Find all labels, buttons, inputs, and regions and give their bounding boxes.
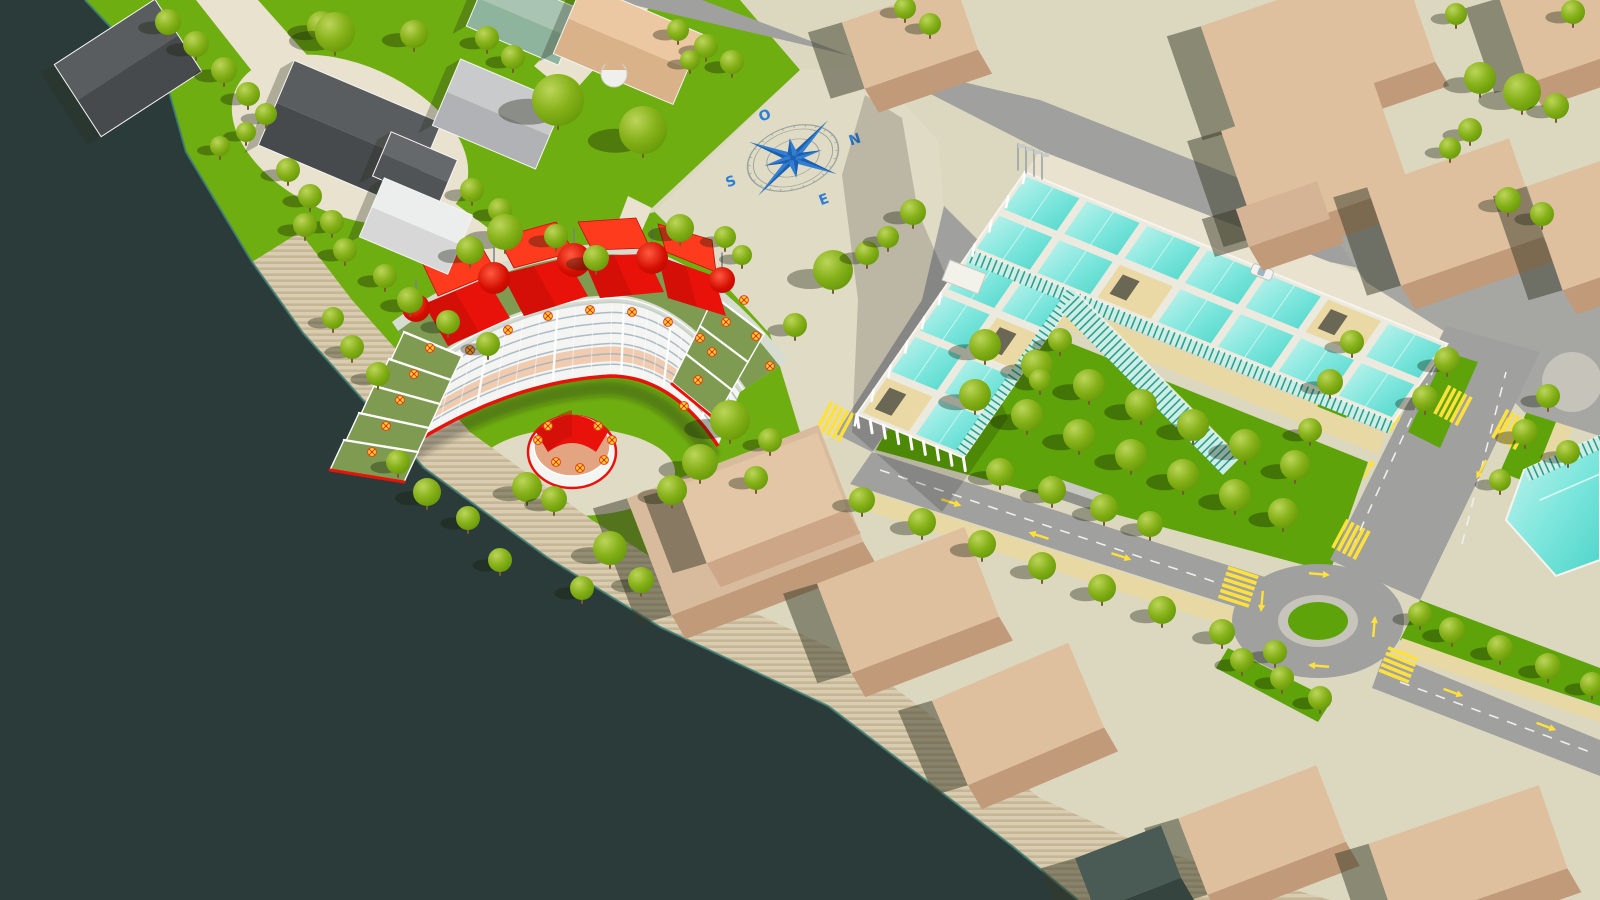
tree [1280, 450, 1310, 480]
tree [666, 214, 694, 242]
tree [1028, 552, 1056, 580]
tree [460, 178, 484, 202]
parasol-icon [600, 456, 609, 465]
tree [541, 486, 567, 512]
tree [1270, 666, 1294, 690]
parasol-icon [664, 318, 673, 327]
tree [512, 472, 542, 502]
tree [628, 567, 654, 593]
tree [1556, 440, 1580, 464]
tree [155, 9, 181, 35]
tree [456, 506, 480, 530]
tree [373, 264, 397, 288]
tree [386, 450, 410, 474]
tree [969, 329, 1001, 361]
tree [1137, 511, 1163, 537]
tree [619, 106, 667, 154]
parasol-icon [628, 308, 637, 317]
parasol-icon [396, 396, 405, 405]
tree [1177, 409, 1209, 441]
tree [315, 12, 355, 52]
parasol-icon [766, 362, 775, 371]
tree [1029, 369, 1051, 391]
parasol-icon [696, 334, 705, 343]
tree [1495, 187, 1521, 213]
tree [908, 508, 936, 536]
tree [276, 158, 300, 182]
tree [657, 475, 687, 505]
tree [400, 20, 428, 48]
tree [1561, 0, 1585, 24]
tree [1038, 476, 1066, 504]
tree [1115, 439, 1147, 471]
tree [1535, 653, 1561, 679]
parasol-icon [382, 422, 391, 431]
tree [1530, 202, 1554, 226]
tree [340, 335, 364, 359]
tree [783, 313, 807, 337]
parasol-icon [544, 312, 553, 321]
tree [1458, 118, 1482, 142]
parasol-icon [426, 344, 435, 353]
tree [959, 379, 991, 411]
parasol-icon [586, 306, 595, 315]
tree [413, 478, 441, 506]
tree [475, 26, 499, 50]
tree [1464, 62, 1496, 94]
parasol-icon [680, 402, 689, 411]
tree [583, 245, 609, 271]
tree [476, 332, 500, 356]
parasol-icon [708, 348, 717, 357]
tree [210, 136, 230, 156]
tree [570, 576, 594, 600]
tree [236, 122, 256, 142]
tree [1308, 686, 1332, 710]
tree [1317, 369, 1343, 395]
tree [293, 213, 317, 237]
tree [1209, 619, 1235, 645]
tree [1512, 419, 1538, 445]
site-plan-rendering: O N S E [0, 0, 1600, 900]
tree [1048, 328, 1072, 352]
tree [1011, 399, 1043, 431]
parasol-icon [594, 422, 603, 431]
tree [1219, 479, 1251, 511]
tree [720, 50, 744, 74]
tree [1439, 137, 1461, 159]
parasol-icon [504, 326, 513, 335]
parasol-icon [368, 448, 377, 457]
tree [456, 236, 484, 264]
tree [236, 82, 260, 106]
tree [680, 50, 700, 70]
tree [1090, 494, 1118, 522]
tree [397, 287, 423, 313]
tree [501, 45, 525, 69]
tree [488, 548, 512, 572]
tree [1536, 384, 1560, 408]
tree [333, 238, 357, 262]
tree [1229, 429, 1261, 461]
parasol-icon [740, 296, 749, 305]
parasol-icon [534, 436, 543, 445]
tree [900, 199, 926, 225]
parasol-icon [552, 458, 561, 467]
parasol-icon [752, 332, 761, 341]
tree [436, 310, 460, 334]
tree [255, 103, 277, 125]
tree [183, 31, 209, 57]
tree [1148, 596, 1176, 624]
tree [1063, 419, 1095, 451]
parasol-icon [544, 422, 553, 431]
tree [667, 19, 689, 41]
tree [1434, 347, 1460, 373]
tree [1487, 635, 1513, 661]
parasol-icon [694, 376, 703, 385]
tree [732, 245, 752, 265]
tree [1439, 617, 1465, 643]
tree [366, 362, 390, 386]
tree [1412, 385, 1438, 411]
tree [1073, 369, 1105, 401]
tree [1340, 330, 1364, 354]
tree [1408, 602, 1432, 626]
tree [744, 466, 768, 490]
tree [758, 428, 782, 452]
tree [532, 74, 584, 126]
parasol-icon [608, 436, 617, 445]
tree [1263, 640, 1287, 664]
tree [1167, 459, 1199, 491]
tree [320, 210, 344, 234]
tree [544, 224, 568, 248]
tree [1125, 389, 1157, 421]
tree [1268, 498, 1298, 528]
tree [1445, 3, 1467, 25]
tree [298, 184, 322, 208]
tree [1503, 73, 1541, 111]
tree [1230, 648, 1254, 672]
tree [849, 487, 875, 513]
tree [487, 214, 523, 250]
tree [211, 57, 237, 83]
tree [919, 13, 941, 35]
tree [1543, 93, 1569, 119]
scene-svg: O N S E [0, 0, 1600, 900]
parasol-icon [722, 318, 731, 327]
tree [1489, 469, 1511, 491]
tree [1088, 574, 1116, 602]
tree [877, 226, 899, 248]
parasol-icon [410, 370, 419, 379]
tree [1298, 418, 1322, 442]
tree [968, 530, 996, 558]
tree [714, 226, 736, 248]
tree [322, 307, 344, 329]
tree [682, 444, 718, 480]
tree [710, 400, 750, 440]
tree [593, 531, 627, 565]
tree [986, 458, 1014, 486]
parasol-icon [576, 464, 585, 473]
